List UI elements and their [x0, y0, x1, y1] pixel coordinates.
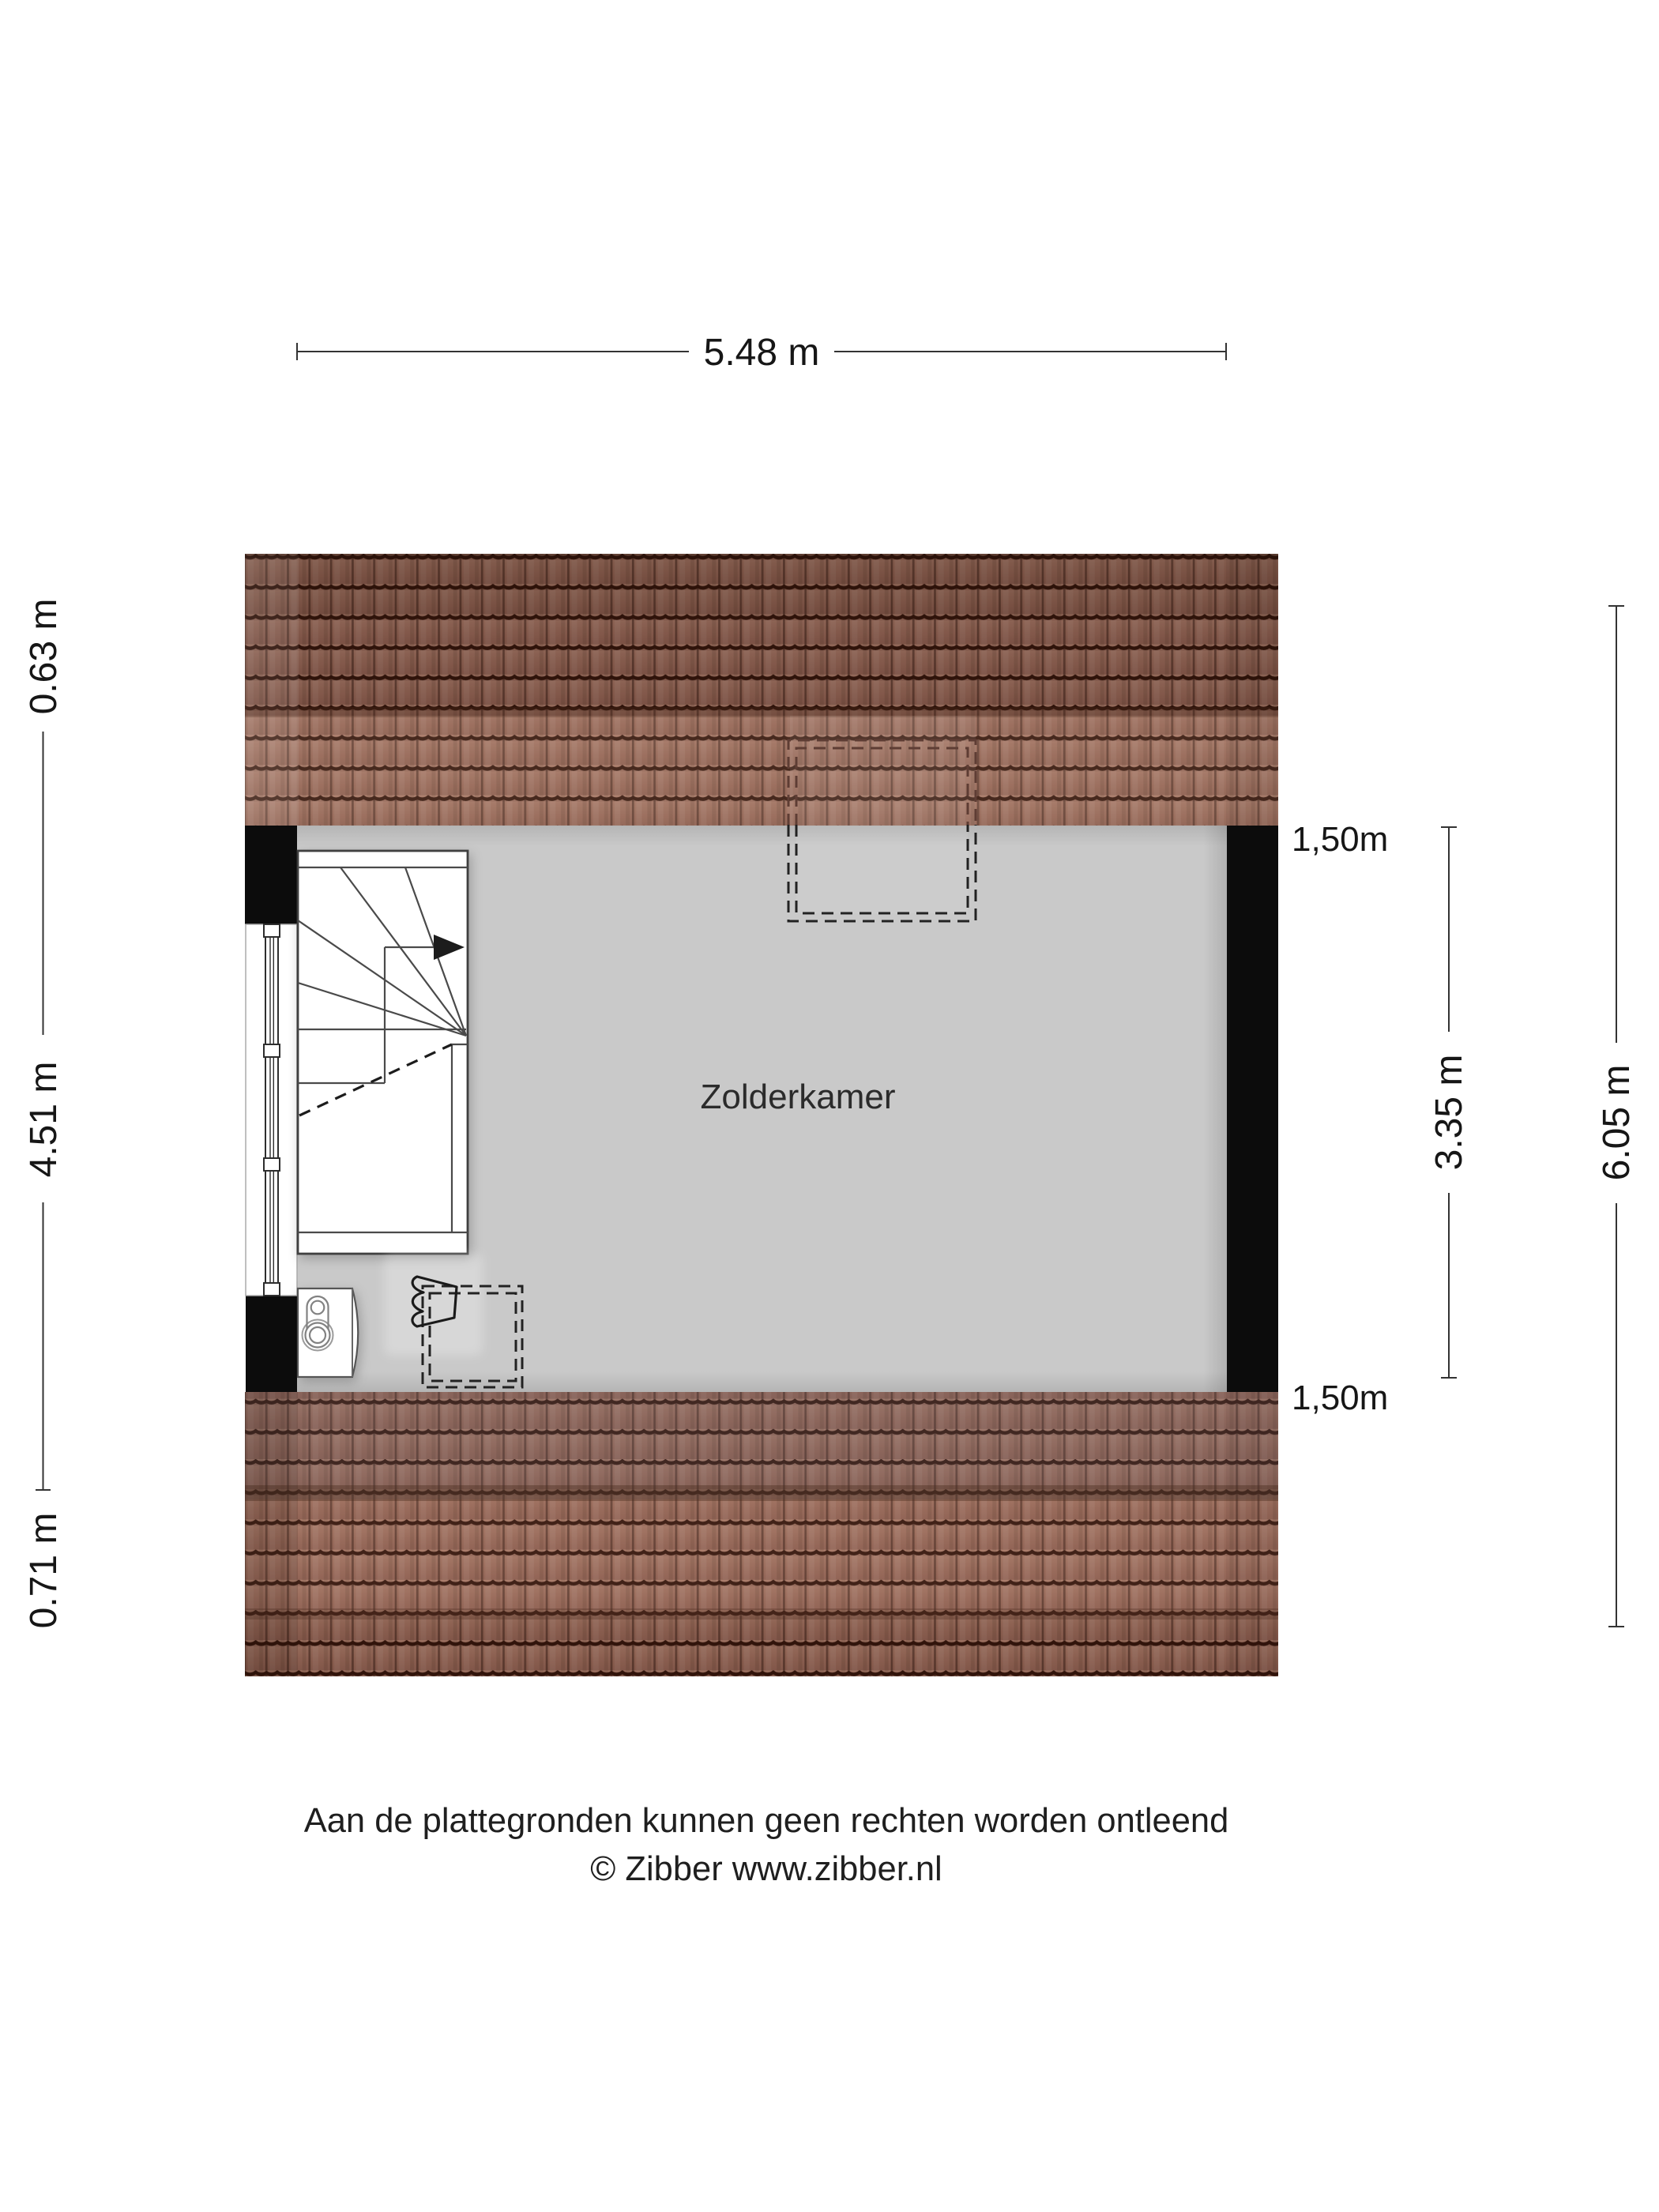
- svg-text:0.71 m: 0.71 m: [23, 1513, 65, 1629]
- svg-text:Aan de plattegronden kunnen ge: Aan de plattegronden kunnen geen rechten…: [304, 1802, 1229, 1840]
- svg-text:5.48 m: 5.48 m: [704, 332, 820, 374]
- svg-text:6.05 m: 6.05 m: [1596, 1065, 1638, 1181]
- svg-text:3.35 m: 3.35 m: [1428, 1055, 1470, 1171]
- svg-text:Zolderkamer: Zolderkamer: [701, 1078, 896, 1116]
- svg-text:© Zibber www.zibber.nl: © Zibber www.zibber.nl: [590, 1850, 942, 1888]
- svg-text:0.63 m: 0.63 m: [23, 599, 65, 715]
- svg-text:1,50m: 1,50m: [1292, 1379, 1388, 1417]
- svg-text:1,50m: 1,50m: [1292, 820, 1388, 859]
- svg-text:4.51 m: 4.51 m: [23, 1062, 65, 1178]
